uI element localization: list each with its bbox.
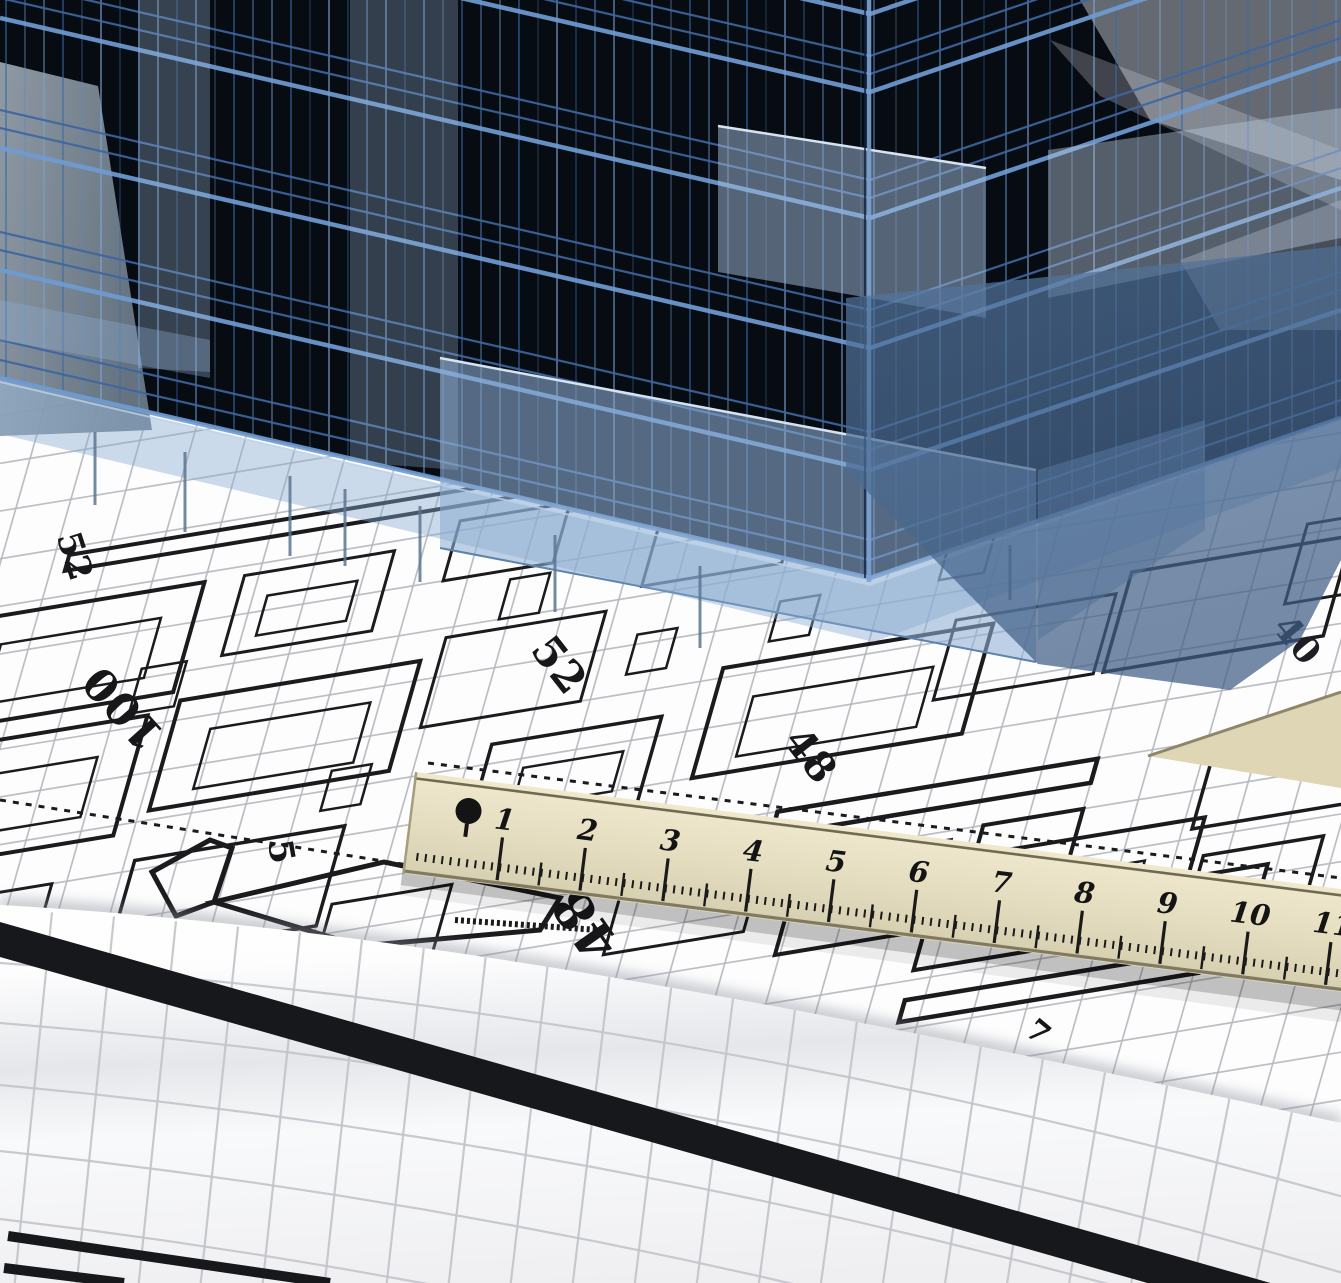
glass-column — [138, 0, 210, 372]
ruler-number: 11 — [1311, 905, 1341, 944]
ruler-number: 7 — [990, 864, 1014, 900]
scene-svg: 521005248252540405487 — [0, 0, 1341, 1283]
ruler-number: 10 — [1228, 894, 1272, 933]
blueprint-scene: 521005248252540405487 — [0, 0, 1341, 1283]
ruler-number: 1 — [493, 801, 517, 837]
ruler-number: 3 — [658, 822, 682, 858]
ruler-number: 2 — [574, 812, 599, 848]
ruler-number: 6 — [907, 854, 931, 890]
ruler-number: 4 — [741, 833, 765, 869]
ruler-number: 9 — [1155, 885, 1179, 921]
ruler-number: 8 — [1071, 875, 1096, 911]
ruler-number: 5 — [824, 843, 848, 879]
